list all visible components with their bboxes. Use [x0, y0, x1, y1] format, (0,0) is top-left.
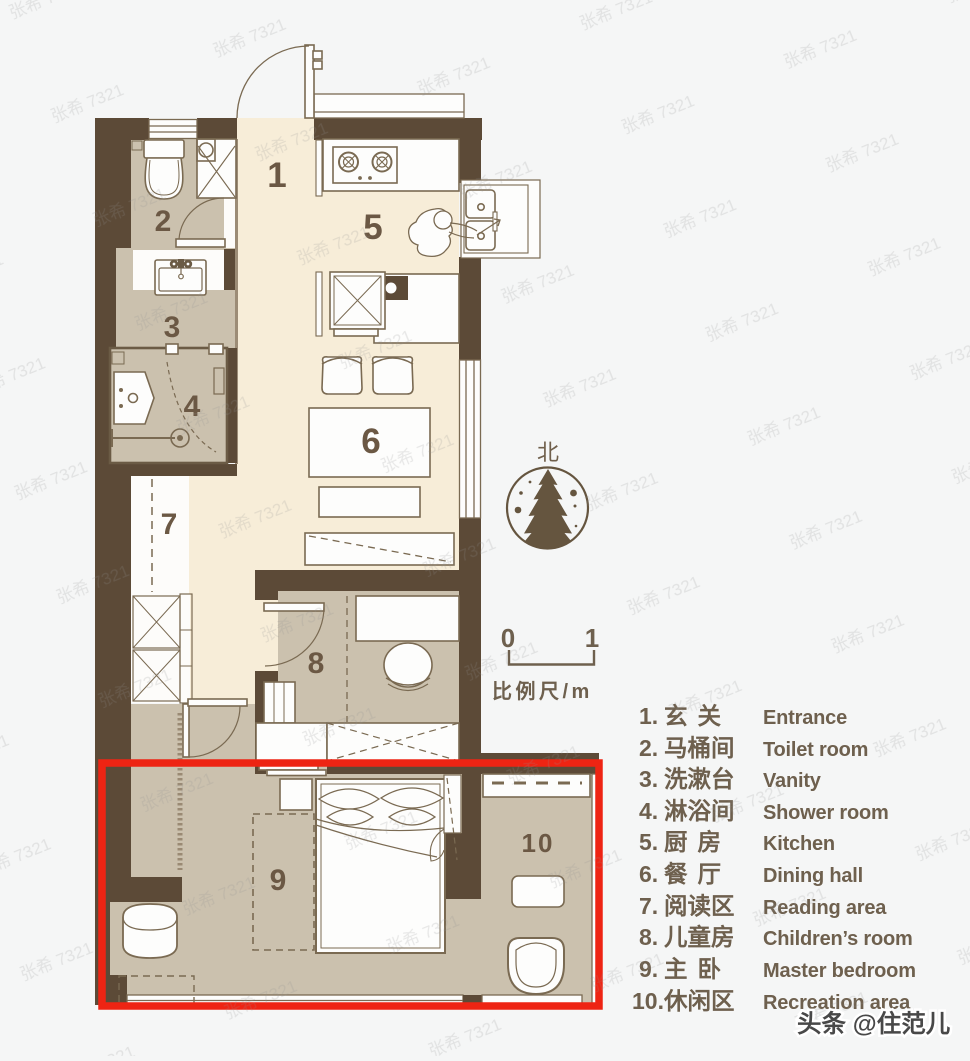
svg-text:头条 @住范儿: 头条 @住范儿 [797, 1009, 951, 1038]
